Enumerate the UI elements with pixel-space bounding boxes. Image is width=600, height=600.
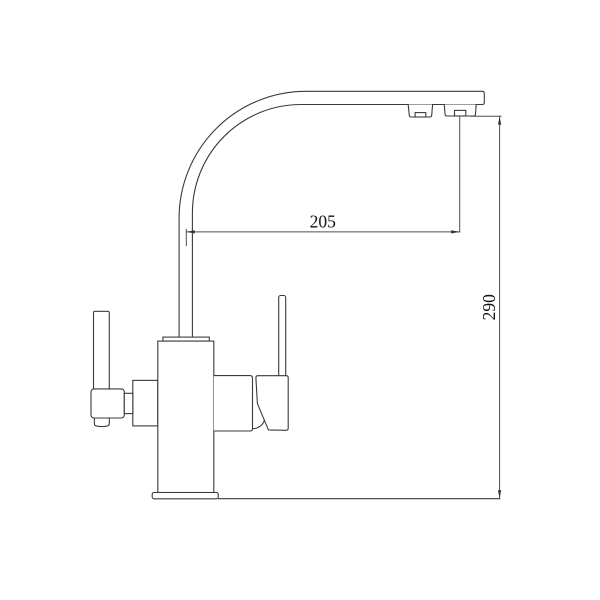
svg-text:290: 290 [479, 294, 499, 321]
svg-text:205: 205 [310, 211, 337, 231]
